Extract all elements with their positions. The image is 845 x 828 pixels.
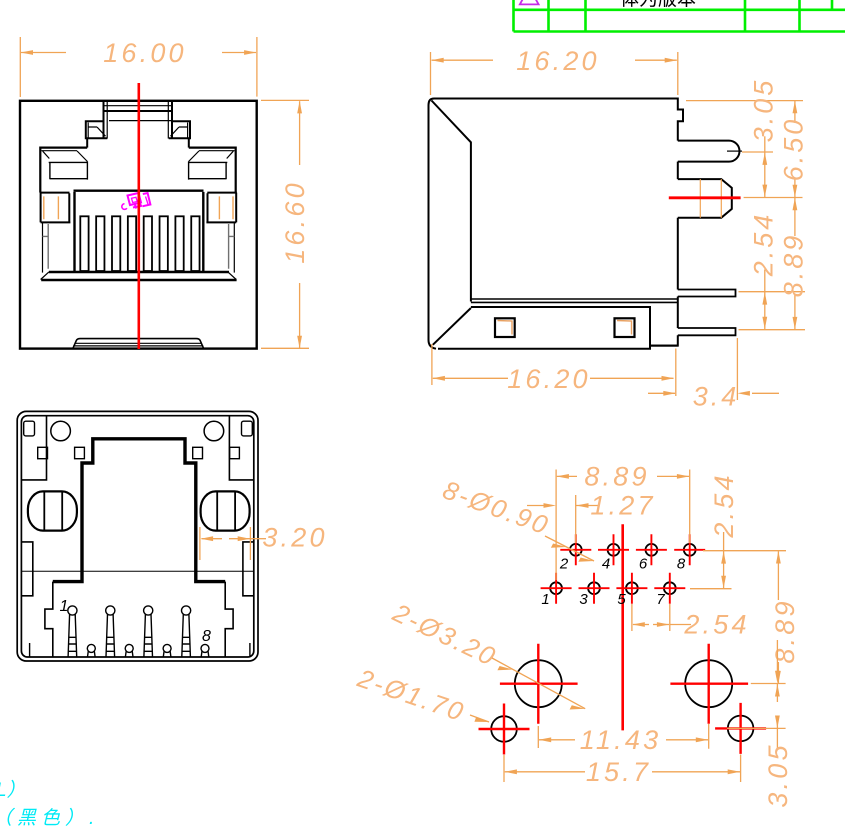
svg-text:8: 8 [677, 556, 686, 573]
svg-text:16.20: 16.20 [516, 46, 600, 76]
svg-text:2: 2 [559, 556, 569, 573]
svg-text:16.00: 16.00 [103, 38, 187, 68]
svg-text:7: 7 [656, 591, 665, 608]
svg-text:8.89: 8.89 [779, 233, 809, 298]
svg-text:3.05: 3.05 [763, 742, 793, 807]
svg-text:（黑色）.: （黑色）. [0, 807, 99, 828]
svg-text:L）: L） [0, 779, 26, 801]
svg-text:1: 1 [60, 598, 69, 615]
svg-text:2.54: 2.54 [749, 212, 779, 278]
svg-text:4: 4 [602, 556, 610, 573]
svg-text:15.7: 15.7 [586, 757, 651, 787]
svg-text:6: 6 [639, 556, 648, 573]
svg-text:16.60: 16.60 [280, 180, 310, 264]
svg-text:3.05: 3.05 [749, 78, 779, 143]
svg-text:11.43: 11.43 [580, 725, 662, 755]
svg-text:8: 8 [202, 628, 211, 645]
svg-text:16.20: 16.20 [507, 364, 591, 394]
svg-text:8.89: 8.89 [770, 598, 800, 663]
svg-text:3.20: 3.20 [262, 523, 327, 553]
svg-text:2.54: 2.54 [683, 610, 749, 640]
svg-text:体为版本: 体为版本 [620, 0, 696, 10]
svg-text:1: 1 [541, 591, 549, 608]
svg-text:5: 5 [617, 591, 626, 608]
svg-text:8.89: 8.89 [584, 462, 649, 492]
svg-text:2.54: 2.54 [709, 472, 739, 538]
svg-text:3.4: 3.4 [693, 382, 740, 412]
svg-text:1.27: 1.27 [590, 491, 655, 521]
svg-text:3: 3 [579, 591, 588, 608]
svg-text:6.50: 6.50 [779, 117, 809, 182]
